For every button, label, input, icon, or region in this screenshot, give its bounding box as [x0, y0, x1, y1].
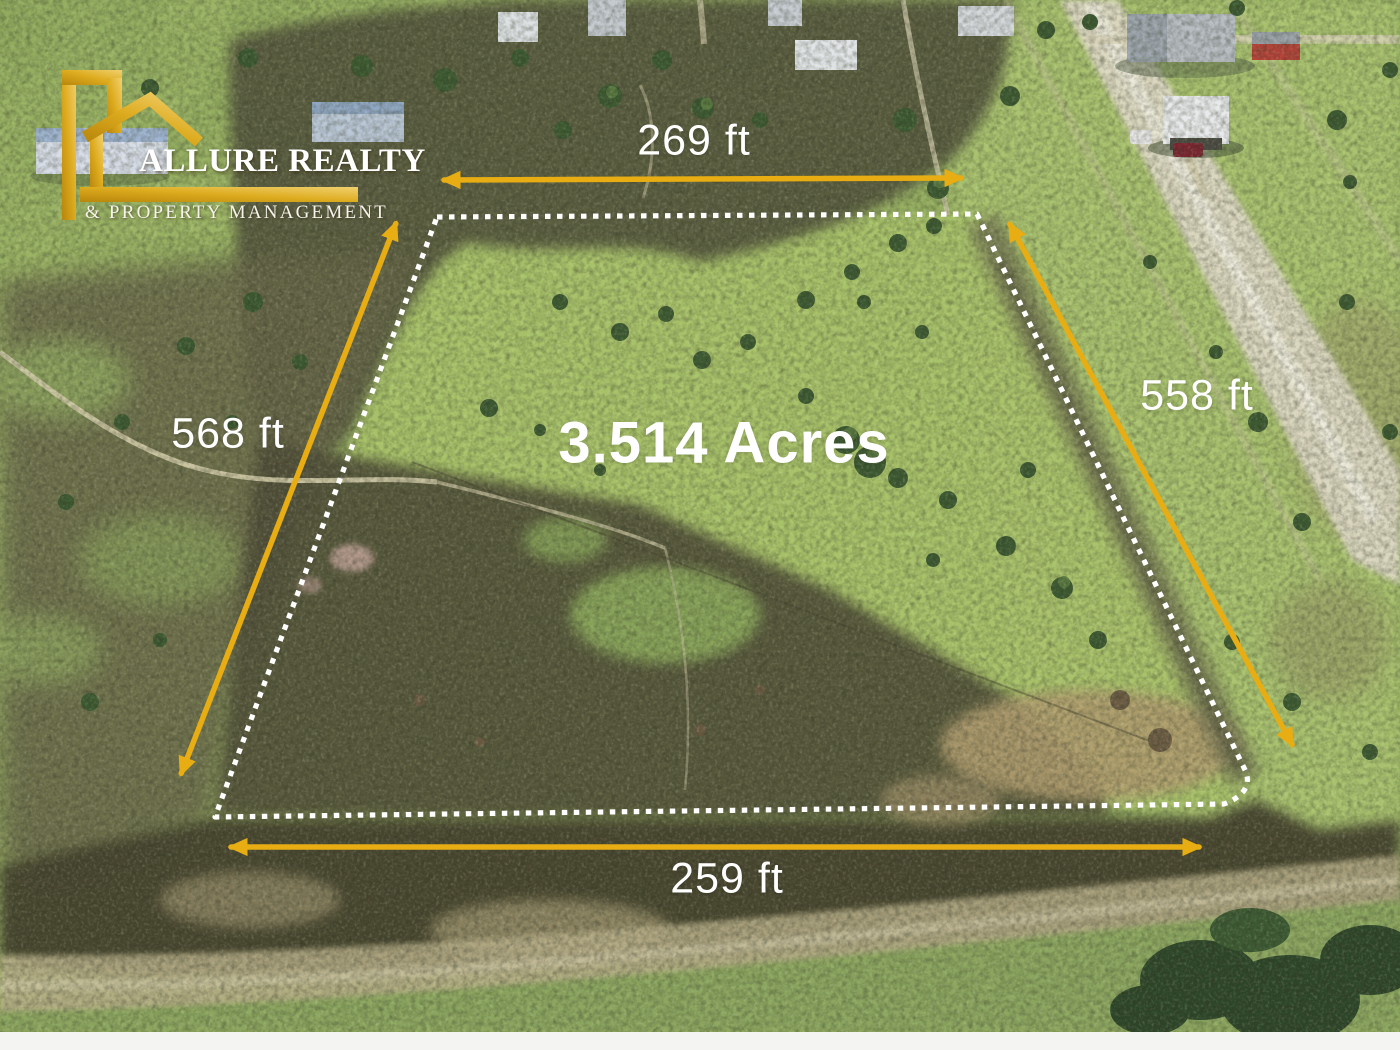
bottom-margin-strip — [0, 1032, 1400, 1050]
dimension-label-left: 568 ft — [171, 410, 285, 459]
dimension-label-right: 558 ft — [1140, 372, 1254, 421]
dimension-label-top: 269 ft — [637, 117, 751, 166]
allure-realty-logo: ALLURE REALTY & PROPERTY MANAGEMENT — [55, 63, 385, 238]
agency-name: ALLURE REALTY — [139, 143, 426, 180]
land-listing-image: 269 ft 568 ft 558 ft 259 ft 3.514 Acres — [0, 0, 1400, 1050]
parcel-area-label: 3.514 Acres — [558, 410, 889, 477]
agency-tagline: & PROPERTY MANAGEMENT — [85, 202, 388, 224]
dimension-label-bottom: 259 ft — [670, 855, 784, 904]
